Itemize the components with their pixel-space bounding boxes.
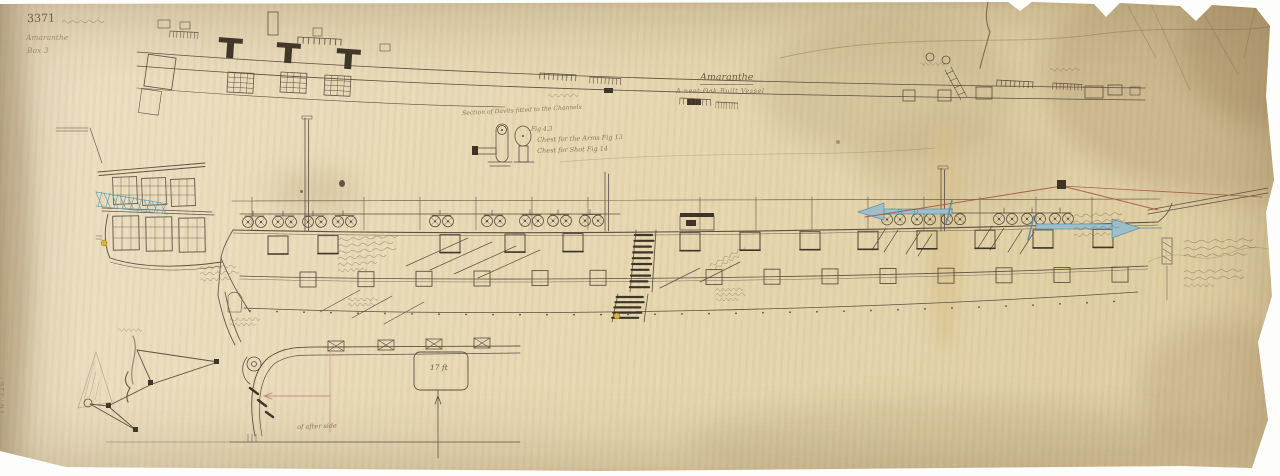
main-mast: [605, 172, 609, 231]
inboard-profile: [221, 116, 1268, 324]
blue-balustrade: [96, 192, 168, 214]
davit-section-detail: [472, 124, 534, 166]
right-edge-tag: [1162, 238, 1172, 300]
yellow-fitting: [614, 313, 620, 319]
draught-paper: 3371 Amaranthe Box 3 Amaranthe A neat Oa…: [0, 0, 1280, 476]
bow-detail-sketch: [106, 338, 520, 458]
stern-gallery: [96, 163, 242, 345]
handwriting-scribbles: [62, 20, 1256, 331]
ship-draught-drawing: [0, 0, 1280, 476]
hull-hatching: [320, 226, 1034, 324]
anchor-spars-blue: [858, 200, 1162, 240]
scan-background: 3371 Amaranthe Box 3 Amaranthe A neat Oa…: [0, 0, 1280, 476]
paper-crack: [980, 2, 990, 68]
companion-ladder: [612, 230, 656, 322]
practice-triangle-sketch: [78, 352, 112, 408]
stern-lantern: [101, 240, 107, 246]
paper-creases: [560, 2, 1272, 300]
davit-detail-sketch: [84, 336, 219, 432]
galley-stove: [680, 213, 714, 230]
top-deck-plan: [56, 12, 1145, 163]
